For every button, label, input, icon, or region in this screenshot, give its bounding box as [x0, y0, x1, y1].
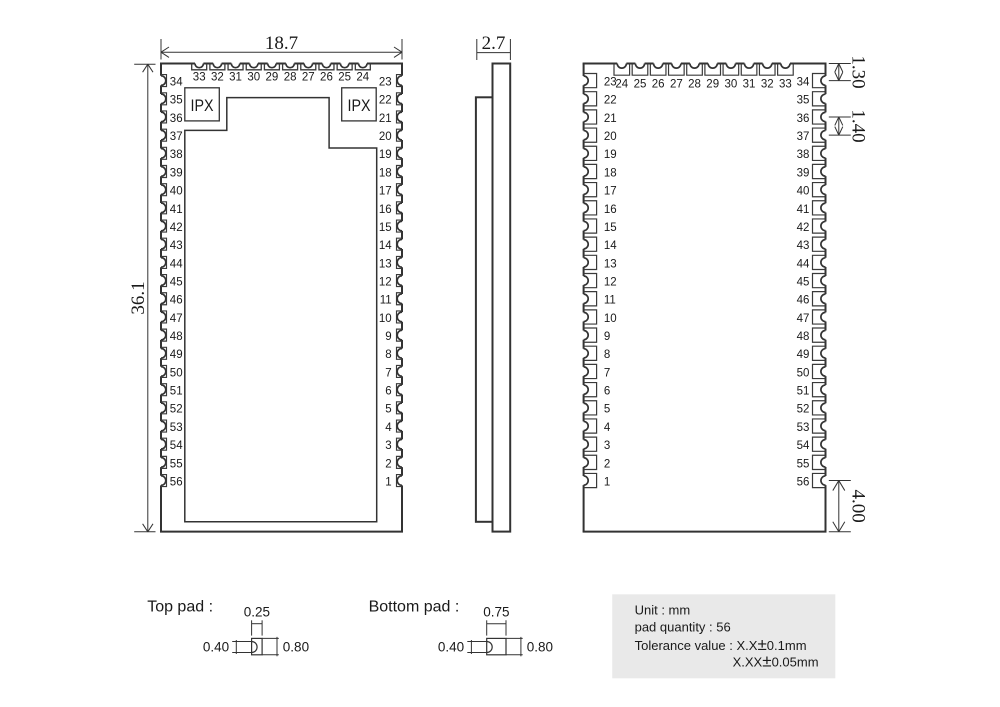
svg-text:2: 2 [385, 458, 391, 470]
svg-text:56: 56 [170, 476, 183, 488]
svg-text:54: 54 [797, 440, 810, 452]
svg-text:42: 42 [170, 222, 183, 234]
svg-text:36.1: 36.1 [128, 281, 149, 314]
svg-text:36: 36 [170, 113, 183, 125]
svg-text:46: 46 [170, 295, 183, 307]
svg-text:6: 6 [385, 386, 391, 398]
svg-text:5: 5 [604, 404, 610, 416]
svg-text:31: 31 [743, 78, 756, 90]
svg-text:9: 9 [604, 331, 610, 343]
svg-text:Top pad :: Top pad : [147, 599, 213, 616]
svg-text:33: 33 [779, 78, 792, 90]
svg-text:13: 13 [379, 258, 392, 270]
svg-text:24: 24 [615, 78, 628, 90]
svg-text:32: 32 [211, 71, 224, 83]
svg-text:38: 38 [170, 149, 183, 161]
svg-text:22: 22 [604, 95, 617, 107]
svg-text:16: 16 [604, 204, 617, 216]
svg-text:37: 37 [797, 131, 810, 143]
svg-text:47: 47 [170, 313, 183, 325]
svg-text:38: 38 [797, 149, 810, 161]
svg-text:25: 25 [338, 71, 351, 83]
svg-text:2.7: 2.7 [482, 33, 506, 54]
svg-text:48: 48 [170, 331, 183, 343]
svg-text:30: 30 [247, 71, 260, 83]
svg-text:19: 19 [604, 149, 617, 161]
svg-text:26: 26 [652, 78, 665, 90]
svg-text:4: 4 [604, 422, 611, 434]
svg-text:17: 17 [379, 186, 392, 198]
svg-text:30: 30 [724, 78, 737, 90]
svg-text:53: 53 [170, 422, 183, 434]
svg-text:49: 49 [797, 349, 810, 361]
svg-text:Bottom pad :: Bottom pad : [369, 599, 460, 616]
svg-text:39: 39 [170, 167, 183, 179]
svg-text:12: 12 [604, 276, 617, 288]
svg-text:40: 40 [170, 186, 183, 198]
svg-text:1.40: 1.40 [848, 109, 869, 142]
svg-text:27: 27 [302, 71, 315, 83]
svg-text:12: 12 [379, 276, 392, 288]
svg-text:32: 32 [761, 78, 774, 90]
svg-text:8: 8 [385, 349, 391, 361]
svg-text:56: 56 [797, 476, 810, 488]
svg-text:55: 55 [797, 458, 810, 470]
svg-text:21: 21 [379, 113, 392, 125]
svg-text:26: 26 [320, 71, 333, 83]
svg-text:16: 16 [379, 204, 392, 216]
svg-text:24: 24 [356, 71, 369, 83]
svg-text:10: 10 [604, 313, 617, 325]
svg-text:34: 34 [170, 77, 183, 89]
svg-text:7: 7 [604, 367, 610, 379]
svg-text:44: 44 [797, 258, 810, 270]
svg-text:Unit : mm: Unit : mm [635, 603, 691, 618]
svg-text:45: 45 [797, 276, 810, 288]
svg-text:39: 39 [797, 167, 810, 179]
svg-text:35: 35 [797, 95, 810, 107]
svg-text:11: 11 [380, 295, 392, 307]
svg-text:40: 40 [797, 186, 810, 198]
svg-text:1.30: 1.30 [848, 55, 869, 88]
svg-text:31: 31 [229, 71, 242, 83]
svg-text:36: 36 [797, 113, 810, 125]
svg-text:27: 27 [670, 78, 683, 90]
svg-text:X.XX±0.05mm: X.XX±0.05mm [733, 652, 819, 671]
svg-text:50: 50 [797, 367, 810, 379]
svg-text:34: 34 [797, 77, 810, 89]
svg-text:52: 52 [797, 404, 810, 416]
svg-text:4.00: 4.00 [848, 490, 869, 523]
svg-text:46: 46 [797, 295, 810, 307]
svg-text:Tolerance value : X.X±0.1mm: Tolerance value : X.X±0.1mm [635, 635, 807, 654]
svg-text:1: 1 [385, 476, 391, 488]
svg-text:19: 19 [379, 149, 392, 161]
svg-text:41: 41 [170, 204, 183, 216]
svg-text:48: 48 [797, 331, 810, 343]
svg-text:20: 20 [604, 131, 617, 143]
svg-text:49: 49 [170, 349, 183, 361]
svg-text:IPX: IPX [191, 96, 214, 115]
svg-text:14: 14 [379, 240, 392, 252]
svg-text:51: 51 [170, 386, 183, 398]
svg-text:IPX: IPX [348, 96, 371, 115]
svg-text:43: 43 [797, 240, 810, 252]
svg-text:28: 28 [688, 78, 701, 90]
svg-text:33: 33 [193, 71, 206, 83]
svg-text:0.40: 0.40 [438, 640, 464, 655]
svg-text:42: 42 [797, 222, 810, 234]
svg-text:29: 29 [266, 71, 279, 83]
svg-text:18.7: 18.7 [265, 33, 298, 54]
svg-text:15: 15 [604, 222, 617, 234]
svg-text:4: 4 [385, 422, 392, 434]
svg-text:50: 50 [170, 367, 183, 379]
svg-text:52: 52 [170, 404, 183, 416]
svg-text:7: 7 [385, 367, 391, 379]
svg-text:21: 21 [604, 113, 617, 125]
svg-text:53: 53 [797, 422, 810, 434]
svg-text:37: 37 [170, 131, 183, 143]
svg-text:22: 22 [379, 95, 392, 107]
svg-text:9: 9 [385, 331, 391, 343]
svg-text:6: 6 [604, 386, 610, 398]
svg-text:14: 14 [604, 240, 617, 252]
svg-text:23: 23 [379, 77, 392, 89]
svg-text:0.75: 0.75 [483, 605, 509, 620]
svg-text:20: 20 [379, 131, 392, 143]
svg-text:35: 35 [170, 95, 183, 107]
svg-text:54: 54 [170, 440, 183, 452]
svg-text:0.40: 0.40 [203, 640, 229, 655]
svg-text:55: 55 [170, 458, 183, 470]
svg-text:3: 3 [385, 440, 391, 452]
svg-text:5: 5 [385, 404, 391, 416]
svg-text:13: 13 [604, 258, 617, 270]
svg-text:23: 23 [604, 77, 617, 89]
svg-text:pad quantity : 56: pad quantity : 56 [635, 620, 731, 635]
svg-text:29: 29 [706, 78, 719, 90]
svg-text:43: 43 [170, 240, 183, 252]
svg-text:10: 10 [379, 313, 392, 325]
svg-text:17: 17 [604, 186, 617, 198]
svg-text:51: 51 [797, 386, 810, 398]
svg-text:18: 18 [604, 167, 617, 179]
svg-text:44: 44 [170, 258, 183, 270]
svg-text:0.80: 0.80 [283, 640, 309, 655]
svg-text:0.25: 0.25 [244, 605, 270, 620]
svg-text:47: 47 [797, 313, 810, 325]
svg-text:8: 8 [604, 349, 610, 361]
svg-text:45: 45 [170, 276, 183, 288]
svg-text:18: 18 [379, 167, 392, 179]
svg-text:1: 1 [604, 476, 610, 488]
svg-text:41: 41 [797, 204, 810, 216]
svg-text:3: 3 [604, 440, 610, 452]
svg-text:0.80: 0.80 [527, 640, 553, 655]
svg-text:25: 25 [634, 78, 647, 90]
svg-text:2: 2 [604, 458, 610, 470]
svg-text:28: 28 [284, 71, 297, 83]
svg-text:11: 11 [604, 295, 616, 307]
svg-text:15: 15 [379, 222, 392, 234]
